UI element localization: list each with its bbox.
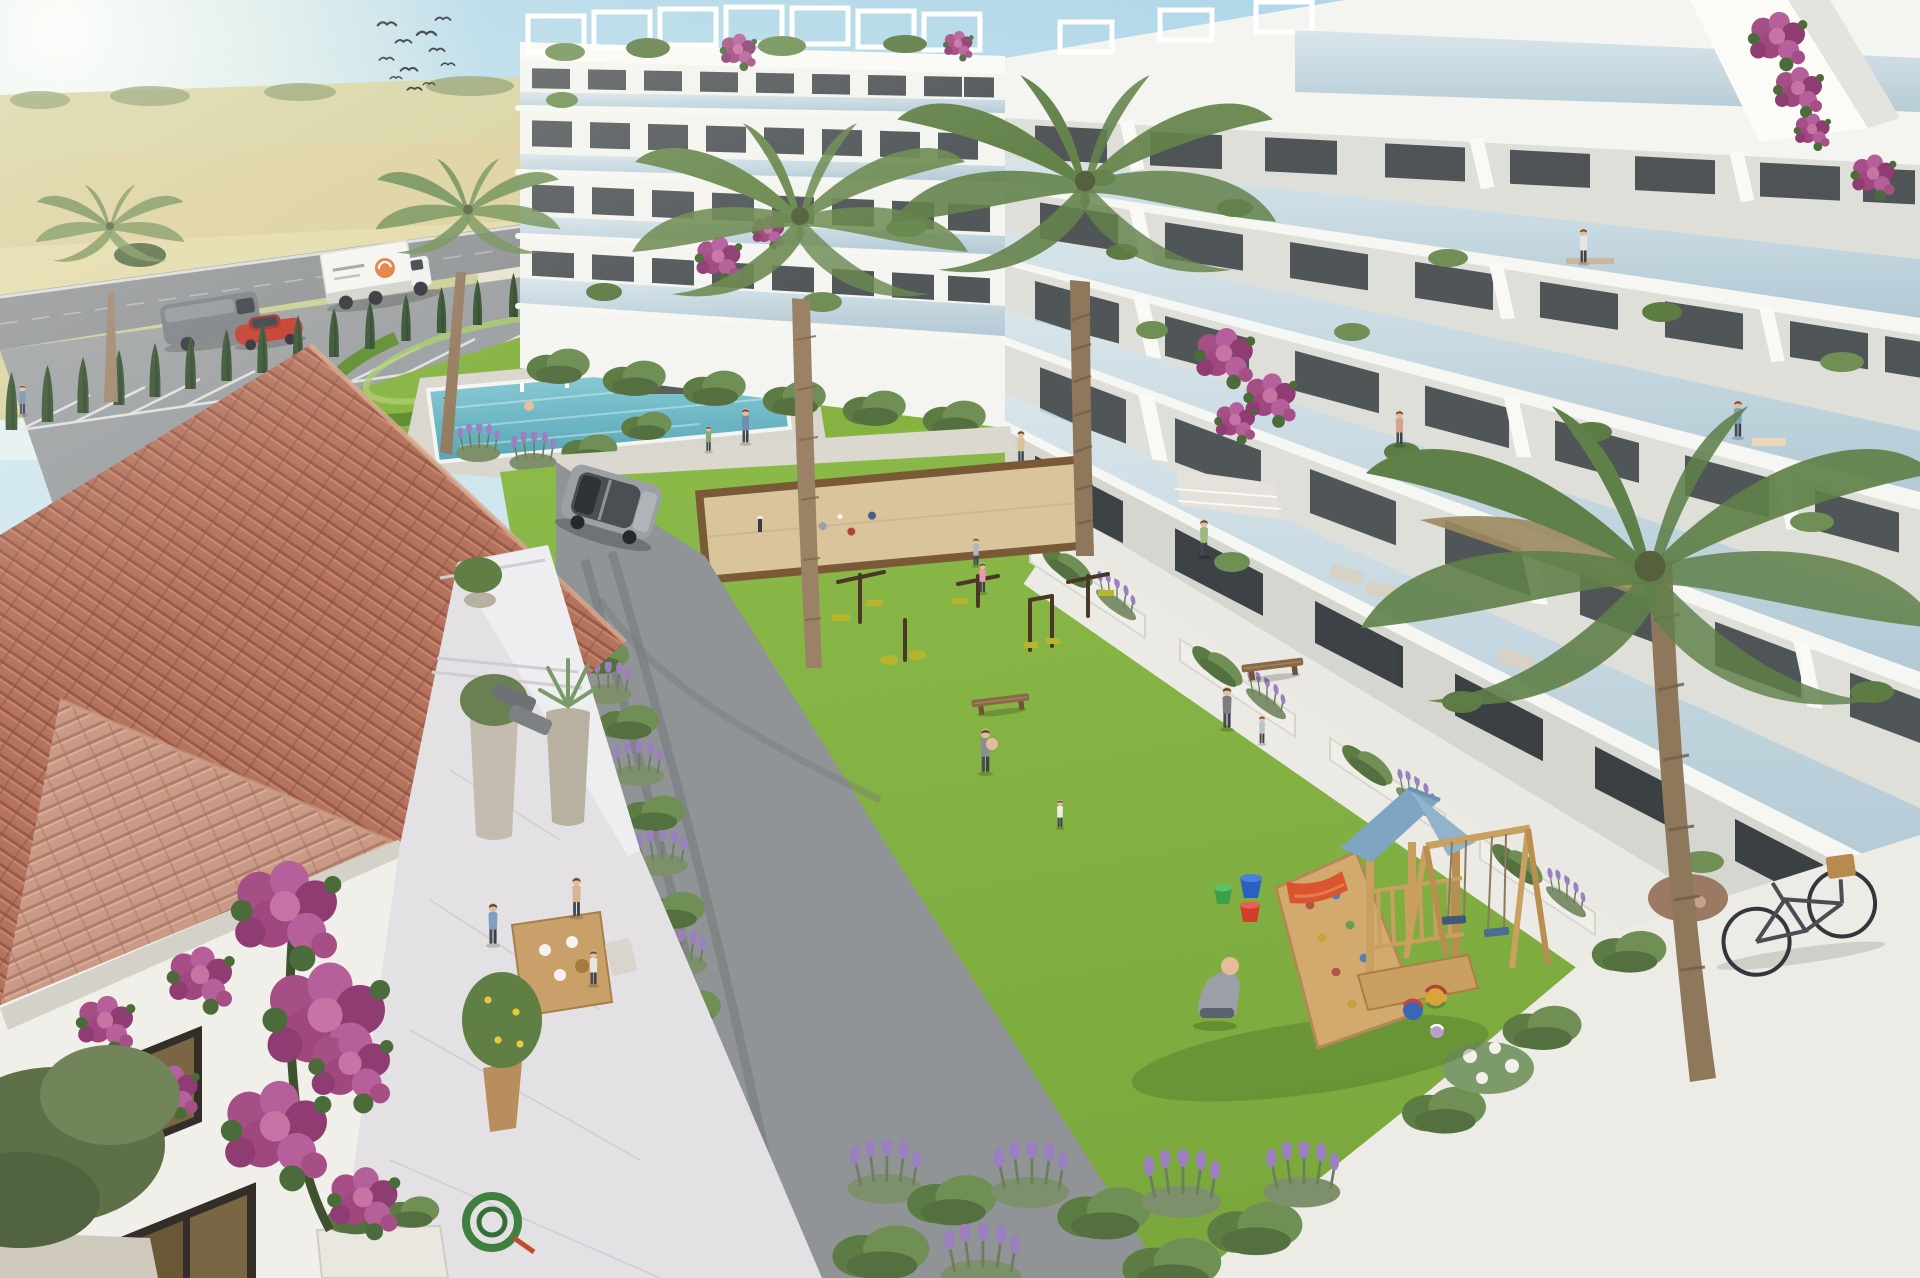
render-image: Aerial render of a Mediterranean residen… (0, 0, 1920, 1278)
sunlight-overlay (0, 0, 1920, 1278)
scene-canvas: Aerial render of a Mediterranean residen… (0, 0, 1920, 1278)
